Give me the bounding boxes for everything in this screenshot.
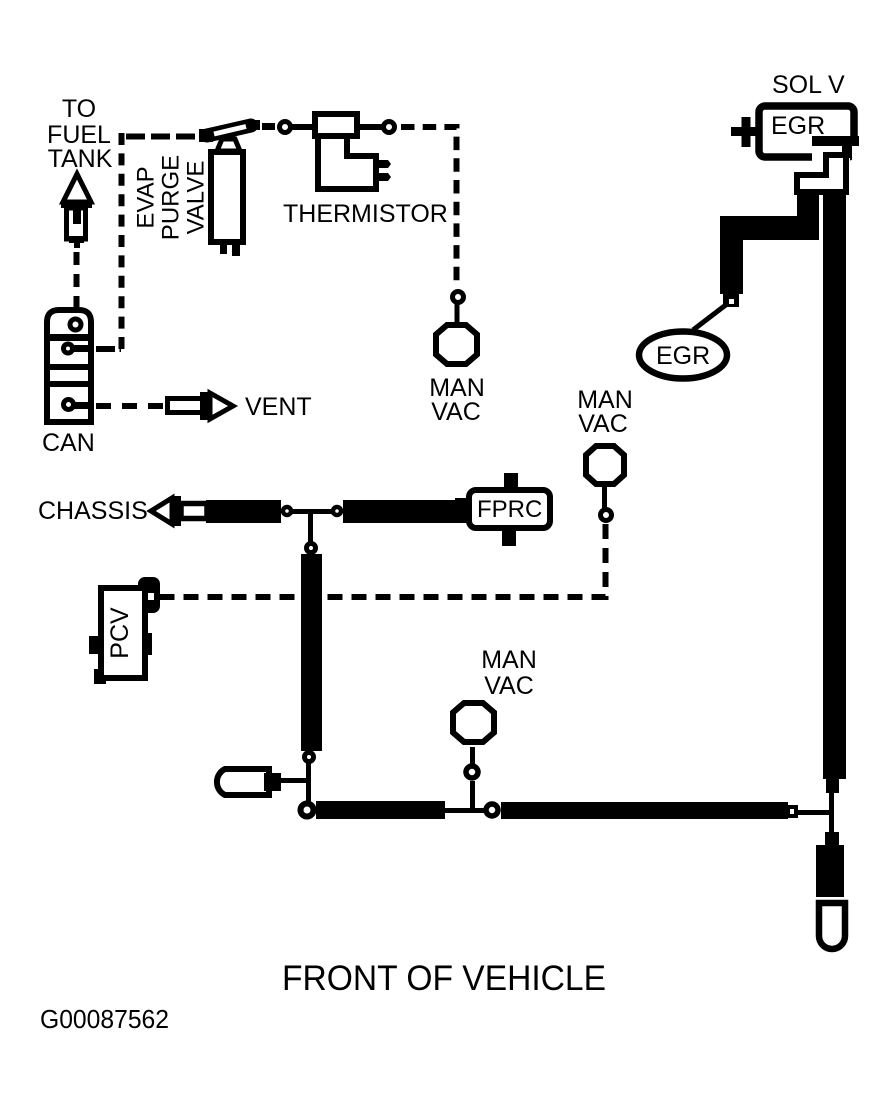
svg-text:FRONT OF VEHICLE: FRONT OF VEHICLE: [282, 959, 606, 998]
svg-text:TO: TO: [62, 95, 96, 123]
svg-text:VAC: VAC: [578, 410, 628, 438]
svg-text:VAC: VAC: [431, 398, 481, 426]
svg-text:VENT: VENT: [245, 393, 312, 421]
svg-text:FPRC: FPRC: [477, 496, 542, 523]
svg-text:CHASSIS: CHASSIS: [38, 497, 148, 525]
svg-text:G00087562: G00087562: [40, 1004, 169, 1034]
svg-text:VALVE: VALVE: [183, 161, 210, 235]
svg-text:EGR: EGR: [656, 342, 710, 370]
svg-text:EVAP: EVAP: [133, 166, 160, 228]
svg-text:PURGE: PURGE: [158, 155, 185, 240]
svg-text:EGR: EGR: [771, 112, 825, 140]
svg-text:THERMISTOR: THERMISTOR: [283, 200, 448, 228]
svg-text:SOL V: SOL V: [772, 71, 845, 99]
svg-text:VAC: VAC: [484, 672, 534, 700]
svg-text:MAN: MAN: [481, 646, 537, 674]
svg-text:TANK: TANK: [48, 145, 113, 173]
svg-text:CAN: CAN: [42, 429, 95, 457]
svg-text:PCV: PCV: [106, 607, 134, 659]
